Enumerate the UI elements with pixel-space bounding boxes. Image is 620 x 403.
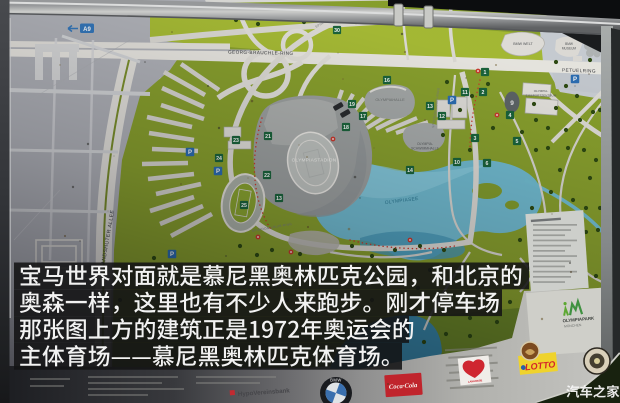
svg-text:BMW: BMW (330, 378, 342, 383)
